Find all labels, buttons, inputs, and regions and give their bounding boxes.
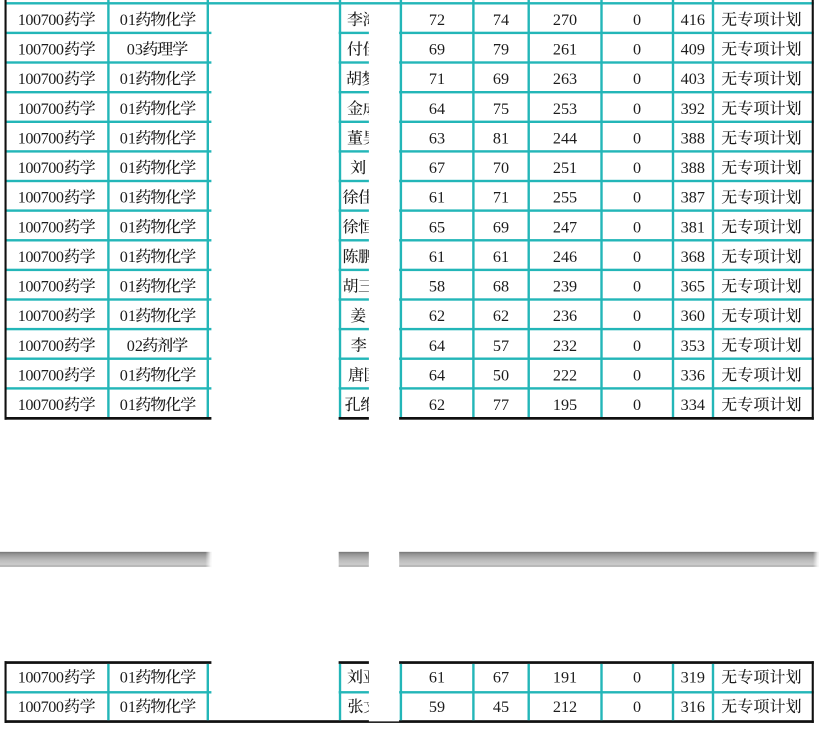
- svg-text:77: 77: [493, 396, 509, 414]
- svg-text:263: 263: [553, 70, 577, 88]
- svg-text:0: 0: [633, 100, 641, 118]
- svg-text:334: 334: [681, 396, 705, 414]
- svg-text:0: 0: [633, 159, 641, 177]
- svg-text:61: 61: [429, 248, 445, 266]
- svg-text:0: 0: [633, 698, 641, 716]
- svg-text:62: 62: [429, 307, 445, 325]
- svg-text:191: 191: [553, 669, 577, 687]
- svg-text:0: 0: [633, 70, 641, 88]
- svg-text:353: 353: [681, 337, 705, 355]
- svg-text:232: 232: [553, 337, 577, 355]
- svg-text:236: 236: [553, 307, 577, 325]
- svg-text:81: 81: [493, 130, 509, 148]
- svg-text:0: 0: [633, 189, 641, 207]
- svg-text:388: 388: [681, 159, 705, 177]
- svg-text:69: 69: [493, 218, 509, 236]
- svg-text:261: 261: [553, 41, 577, 59]
- svg-text:0: 0: [633, 218, 641, 236]
- svg-text:69: 69: [429, 41, 445, 59]
- svg-text:64: 64: [429, 337, 445, 355]
- svg-text:0: 0: [633, 669, 641, 687]
- svg-text:319: 319: [681, 669, 705, 687]
- svg-text:65: 65: [429, 218, 445, 236]
- svg-text:247: 247: [553, 218, 577, 236]
- svg-text:316: 316: [681, 698, 705, 716]
- svg-text:57: 57: [493, 337, 509, 355]
- svg-text:388: 388: [681, 130, 705, 148]
- svg-text:0: 0: [633, 307, 641, 325]
- svg-text:212: 212: [553, 698, 577, 716]
- svg-text:74: 74: [493, 11, 509, 29]
- svg-text:79: 79: [493, 41, 509, 59]
- svg-text:255: 255: [553, 189, 577, 207]
- svg-text:222: 222: [553, 366, 577, 384]
- svg-text:50: 50: [493, 366, 509, 384]
- svg-text:392: 392: [681, 100, 705, 118]
- svg-text:69: 69: [493, 70, 509, 88]
- svg-text:64: 64: [429, 366, 445, 384]
- svg-text:409: 409: [681, 41, 705, 59]
- svg-text:0: 0: [633, 366, 641, 384]
- svg-text:59: 59: [429, 698, 445, 716]
- svg-text:72: 72: [429, 11, 445, 29]
- svg-text:67: 67: [429, 159, 445, 177]
- svg-text:253: 253: [553, 100, 577, 118]
- svg-text:61: 61: [429, 669, 445, 687]
- svg-text:71: 71: [429, 70, 445, 88]
- svg-text:239: 239: [553, 278, 577, 296]
- svg-text:336: 336: [681, 366, 705, 384]
- svg-text:64: 64: [429, 100, 445, 118]
- svg-text:45: 45: [493, 698, 509, 716]
- svg-text:63: 63: [429, 130, 445, 148]
- svg-text:195: 195: [553, 396, 577, 414]
- svg-text:61: 61: [493, 248, 509, 266]
- svg-text:70: 70: [493, 159, 509, 177]
- svg-text:75: 75: [493, 100, 509, 118]
- svg-text:61: 61: [429, 189, 445, 207]
- svg-text:62: 62: [493, 307, 509, 325]
- svg-text:62: 62: [429, 396, 445, 414]
- svg-text:270: 270: [553, 11, 577, 29]
- svg-text:0: 0: [633, 130, 641, 148]
- svg-text:0: 0: [633, 248, 641, 266]
- svg-text:68: 68: [493, 278, 509, 296]
- svg-text:381: 381: [681, 218, 705, 236]
- svg-text:0: 0: [633, 278, 641, 296]
- svg-text:416: 416: [681, 11, 705, 29]
- svg-text:0: 0: [633, 337, 641, 355]
- svg-text:365: 365: [681, 278, 705, 296]
- svg-text:251: 251: [553, 159, 577, 177]
- svg-text:58: 58: [429, 278, 445, 296]
- svg-text:403: 403: [681, 70, 705, 88]
- svg-text:244: 244: [553, 130, 577, 148]
- svg-text:0: 0: [633, 41, 641, 59]
- svg-text:246: 246: [553, 248, 577, 266]
- svg-text:0: 0: [633, 396, 641, 414]
- svg-text:368: 368: [681, 248, 705, 266]
- svg-text:0: 0: [633, 11, 641, 29]
- svg-text:360: 360: [681, 307, 705, 325]
- svg-text:387: 387: [681, 189, 705, 207]
- svg-text:71: 71: [493, 189, 509, 207]
- svg-text:67: 67: [493, 669, 509, 687]
